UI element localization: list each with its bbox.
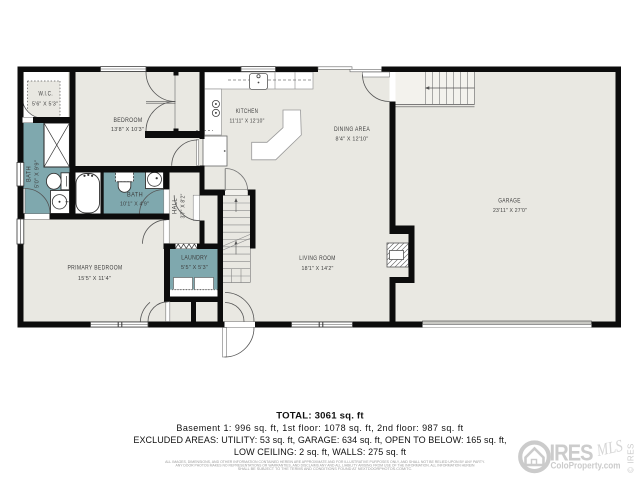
svg-text:BATH: BATH	[127, 193, 143, 199]
svg-text:BATH: BATH	[26, 166, 32, 182]
svg-text:DINING AREA: DINING AREA	[334, 127, 370, 133]
svg-text:BEDROOM: BEDROOM	[114, 118, 143, 124]
svg-text:ColoProperty.com: ColoProperty.com	[551, 461, 621, 471]
svg-text:HALL: HALL	[173, 198, 179, 214]
svg-text:15'5" X 11'4": 15'5" X 11'4"	[78, 276, 111, 282]
svg-text:5'0" X 9'9": 5'0" X 9'9"	[34, 160, 40, 188]
svg-text:GARAGE: GARAGE	[498, 199, 521, 205]
svg-text:EXCLUDED AREAS: UTILITY: 53 sq: EXCLUDED AREAS: UTILITY: 53 sq. ft, GARA…	[133, 435, 506, 445]
svg-text:23'11" X 27'0": 23'11" X 27'0"	[493, 208, 527, 214]
svg-text:KITCHEN: KITCHEN	[236, 109, 259, 115]
svg-text:SHALL BE SUBJECT TO THE TERMS: SHALL BE SUBJECT TO THE TERMS AND CONDIT…	[238, 467, 413, 471]
svg-text:LOW CEILING: 2 sq. ft, WALLS:: LOW CEILING: 2 sq. ft, WALLS: 275 sq. ft	[234, 447, 407, 457]
svg-text:10'1" X 4'9": 10'1" X 4'9"	[120, 201, 149, 207]
svg-text:8'4" X 12'10": 8'4" X 12'10"	[336, 137, 369, 143]
svg-text:3'7" X 8'2": 3'7" X 8'2"	[180, 194, 186, 219]
svg-text:5'5" X 5'3": 5'5" X 5'3"	[181, 265, 208, 271]
svg-text:5'6" X 5'3": 5'6" X 5'3"	[32, 102, 58, 108]
svg-text:PRIMARY BEDROOM: PRIMARY BEDROOM	[68, 266, 123, 272]
svg-text:13'8" X 10'3": 13'8" X 10'3"	[111, 127, 144, 133]
svg-text:TOTAL: 3061 sq. ft: TOTAL: 3061 sq. ft	[276, 411, 364, 422]
svg-text:11'11" X 12'10": 11'11" X 12'10"	[230, 119, 265, 125]
svg-text:LIVING ROOM: LIVING ROOM	[299, 256, 336, 262]
svg-text:18'1" X 14'2": 18'1" X 14'2"	[302, 266, 334, 272]
svg-text:W.I.C.: W.I.C.	[38, 92, 53, 98]
svg-text:Basement 1: 996 sq. ft, 1st fl: Basement 1: 996 sq. ft, 1st floor: 1078 …	[176, 423, 463, 433]
svg-text:© IRES: © IRES	[627, 443, 636, 473]
svg-text:LAUNDRY: LAUNDRY	[181, 256, 208, 262]
